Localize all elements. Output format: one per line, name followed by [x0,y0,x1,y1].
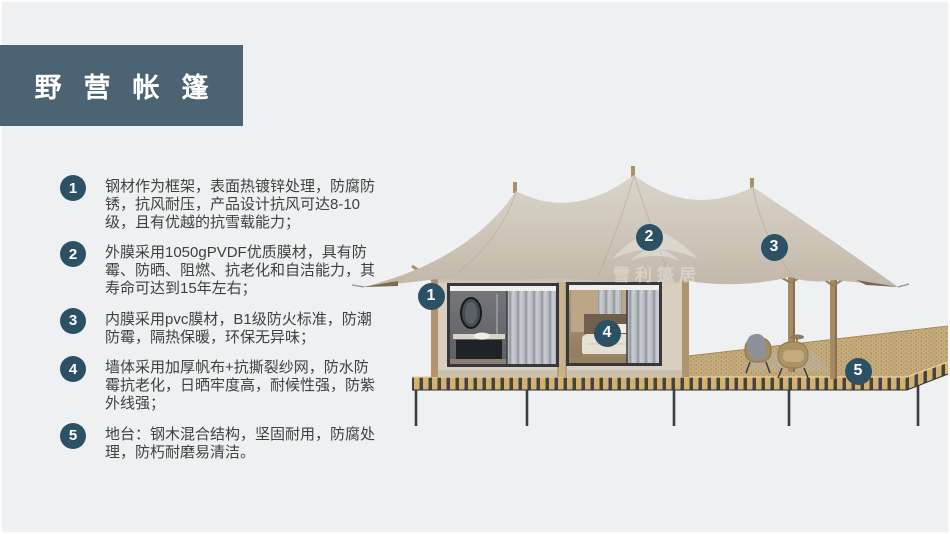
callout-badge-2: 2 [636,224,663,251]
platform-legs [416,386,918,426]
watermark-text: 雪利篷居 [613,265,701,285]
callout-badge-4: 4 [594,320,621,347]
callout-badge-1: 1 [418,283,445,310]
callout-badge-5: 5 [845,358,872,385]
window-bathroom [447,283,559,367]
tent-stage: 雪利篷居 12345 [0,0,950,534]
slide: 野营帐篷 1 钢材作为框架，表面热镀锌处理，防腐防锈，抗风耐压，产品设计抗风可达… [0,0,950,534]
right-tip-hardware [898,284,909,287]
callout-badge-3: 3 [761,234,788,261]
left-tip-hardware [352,285,364,287]
